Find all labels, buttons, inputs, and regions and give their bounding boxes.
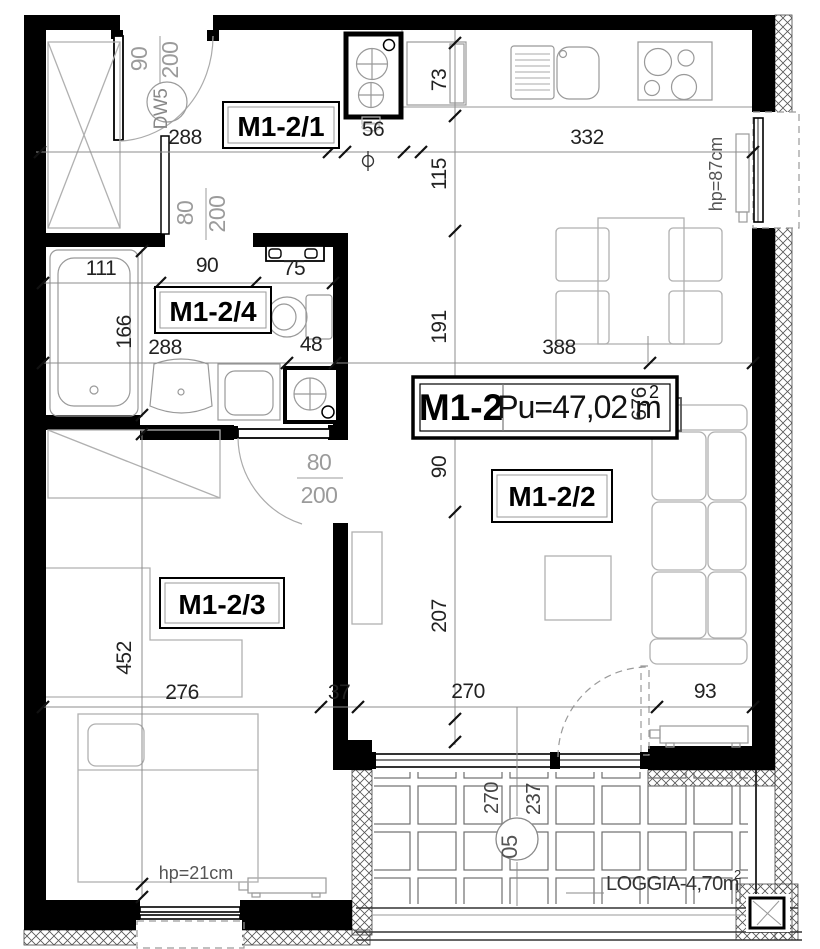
dim-48: 48 — [300, 333, 322, 356]
dim-452: 452 — [113, 641, 136, 675]
entry-door-height: 200 — [157, 42, 183, 79]
entry-door-code: DW5 — [151, 89, 172, 130]
hall-wall-stub — [161, 136, 169, 234]
dim-90: 90 — [428, 456, 451, 478]
bedroom-window-parapet: hp=21cm — [159, 863, 234, 883]
bathroom-bottom-wall-left — [24, 415, 140, 430]
right-wall-upper — [752, 30, 775, 115]
kitchen-window-parapet: hp=87cm — [706, 137, 726, 212]
dim-207: 207 — [428, 599, 451, 633]
dim-93: 93 — [694, 680, 716, 703]
right-wall-lower — [752, 225, 775, 746]
bedroom-door-height: 200 — [301, 482, 338, 508]
loggia-label-sup: 2 — [734, 867, 741, 882]
room-label-bedroom: M1-2/3 — [178, 589, 265, 620]
entry-door-leaf — [114, 36, 123, 140]
bathroom-top-wall-right — [253, 233, 348, 247]
dim-90-bath: 90 — [196, 254, 218, 277]
dim-37: 37 — [328, 681, 350, 704]
entry-door-width: 90 — [126, 47, 152, 72]
bathroom-top-wall-left — [24, 233, 165, 247]
loggia-width: 270 — [481, 782, 503, 814]
dim-332: 332 — [570, 126, 604, 149]
dim-270: 270 — [451, 680, 485, 703]
bathroom-door-width: 80 — [172, 201, 198, 226]
dim-388: 388 — [542, 336, 576, 359]
bedroom-bottom-wall-left — [24, 900, 140, 930]
dim-288-mid: 288 — [148, 336, 182, 359]
bedroom-bottom-wall-right — [240, 900, 352, 930]
bedroom-door-leaf — [238, 429, 330, 438]
bedroom-door-width: 80 — [307, 449, 332, 475]
dim-166: 166 — [113, 315, 136, 349]
dim-276: 276 — [165, 681, 199, 704]
dim-111: 111 — [86, 257, 116, 280]
dim-676: 676 — [628, 387, 651, 421]
loggia-label: LOGGIA-4,70m — [606, 873, 739, 895]
bedroom-door-jamb-left — [230, 426, 238, 439]
floor-plan-drawing: M1-2/1 M1-2/4 M1-2/2 M1-2/3 M1-2 Pu=47,0… — [0, 0, 820, 949]
loggia-column — [746, 894, 790, 932]
dim-56: 56 — [362, 118, 384, 141]
shaft-vent-small — [322, 406, 334, 418]
loggia-number: 05 — [497, 835, 522, 859]
dim-75: 75 — [283, 257, 305, 280]
floor-plan-svg: M1-2/1 M1-2/4 M1-2/2 M1-2/3 M1-2 Pu=47,0… — [0, 0, 820, 949]
top-wall-kitchen — [213, 15, 775, 30]
entry-duct-shaft — [346, 34, 401, 131]
unit-id: M1-2 — [419, 387, 503, 428]
bathroom-door-height: 200 — [204, 196, 230, 233]
room-label-bathroom: M1-2/4 — [169, 296, 257, 327]
loggia-depth: 237 — [523, 783, 545, 815]
dim-191: 191 — [428, 310, 451, 344]
dim-73: 73 — [428, 69, 451, 91]
dim-115: 115 — [428, 158, 451, 190]
room-label-hall: M1-2/1 — [237, 111, 324, 142]
dim-288-top: 288 — [168, 126, 202, 149]
loggia-floor — [356, 770, 802, 940]
top-wall-closet — [24, 15, 120, 30]
partition-corner — [333, 740, 372, 770]
bottom-right-wall — [648, 746, 775, 770]
bathroom-bottom-wall-right — [328, 425, 348, 440]
room-label-living: M1-2/2 — [508, 481, 595, 512]
